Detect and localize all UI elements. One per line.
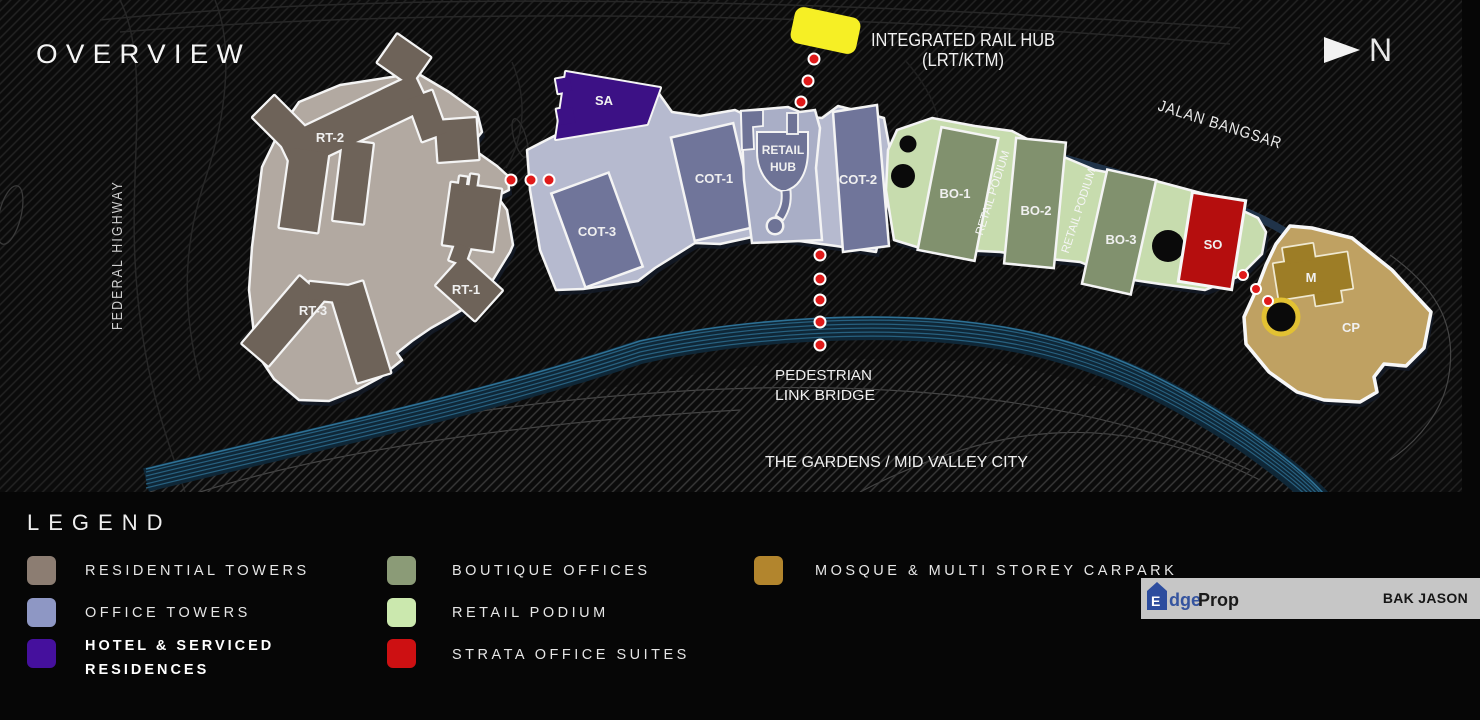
svg-text:OFFICE TOWERS: OFFICE TOWERS	[85, 605, 251, 621]
svg-text:LEGEND: LEGEND	[27, 510, 171, 535]
svg-text:OVERVIEW: OVERVIEW	[36, 39, 251, 69]
svg-text:MOSQUE & MULTI STOREY CARPARK: MOSQUE & MULTI STOREY CARPARK	[815, 563, 1177, 579]
svg-text:BOUTIQUE OFFICES: BOUTIQUE OFFICES	[452, 563, 651, 579]
svg-text:CP: CP	[1342, 320, 1360, 335]
svg-text:BAK JASON: BAK JASON	[1383, 590, 1468, 606]
svg-text:RT-3: RT-3	[299, 303, 327, 318]
svg-text:COT-3: COT-3	[578, 224, 616, 239]
svg-text:BO-1: BO-1	[939, 186, 970, 201]
svg-text:M: M	[1306, 270, 1317, 285]
svg-text:RESIDENTIAL TOWERS: RESIDENTIAL TOWERS	[85, 563, 310, 579]
svg-text:E: E	[1151, 593, 1160, 609]
svg-text:STRATA OFFICE SUITES: STRATA OFFICE SUITES	[452, 647, 690, 663]
svg-text:COT-1: COT-1	[695, 171, 733, 186]
svg-text:LINK BRIDGE: LINK BRIDGE	[775, 387, 875, 404]
svg-text:FEDERAL HIGHWAY: FEDERAL HIGHWAY	[109, 180, 126, 330]
svg-text:INTEGRATED RAIL HUB: INTEGRATED RAIL HUB	[871, 30, 1055, 50]
svg-text:SO: SO	[1204, 237, 1223, 252]
svg-text:(LRT/KTM): (LRT/KTM)	[922, 50, 1004, 70]
svg-text:HOTEL & SERVICED: HOTEL & SERVICED	[85, 638, 274, 654]
svg-text:Prop: Prop	[1198, 590, 1239, 610]
svg-text:RESIDENCES: RESIDENCES	[85, 662, 209, 678]
svg-text:COT-2: COT-2	[839, 172, 877, 187]
svg-text:RT-2: RT-2	[316, 130, 344, 145]
svg-text:HUB: HUB	[770, 160, 796, 174]
svg-text:RT-1: RT-1	[452, 282, 480, 297]
svg-text:RETAIL: RETAIL	[762, 143, 804, 157]
svg-text:SA: SA	[595, 93, 614, 108]
svg-text:THE GARDENS / MID VALLEY CITY: THE GARDENS / MID VALLEY CITY	[765, 454, 1028, 471]
svg-text:BO-3: BO-3	[1105, 232, 1136, 247]
svg-text:N: N	[1369, 32, 1392, 68]
svg-text:BO-2: BO-2	[1020, 203, 1051, 218]
svg-text:dge: dge	[1169, 590, 1201, 610]
svg-text:RETAIL PODIUM: RETAIL PODIUM	[452, 605, 609, 621]
svg-text:PEDESTRIAN: PEDESTRIAN	[775, 367, 872, 384]
